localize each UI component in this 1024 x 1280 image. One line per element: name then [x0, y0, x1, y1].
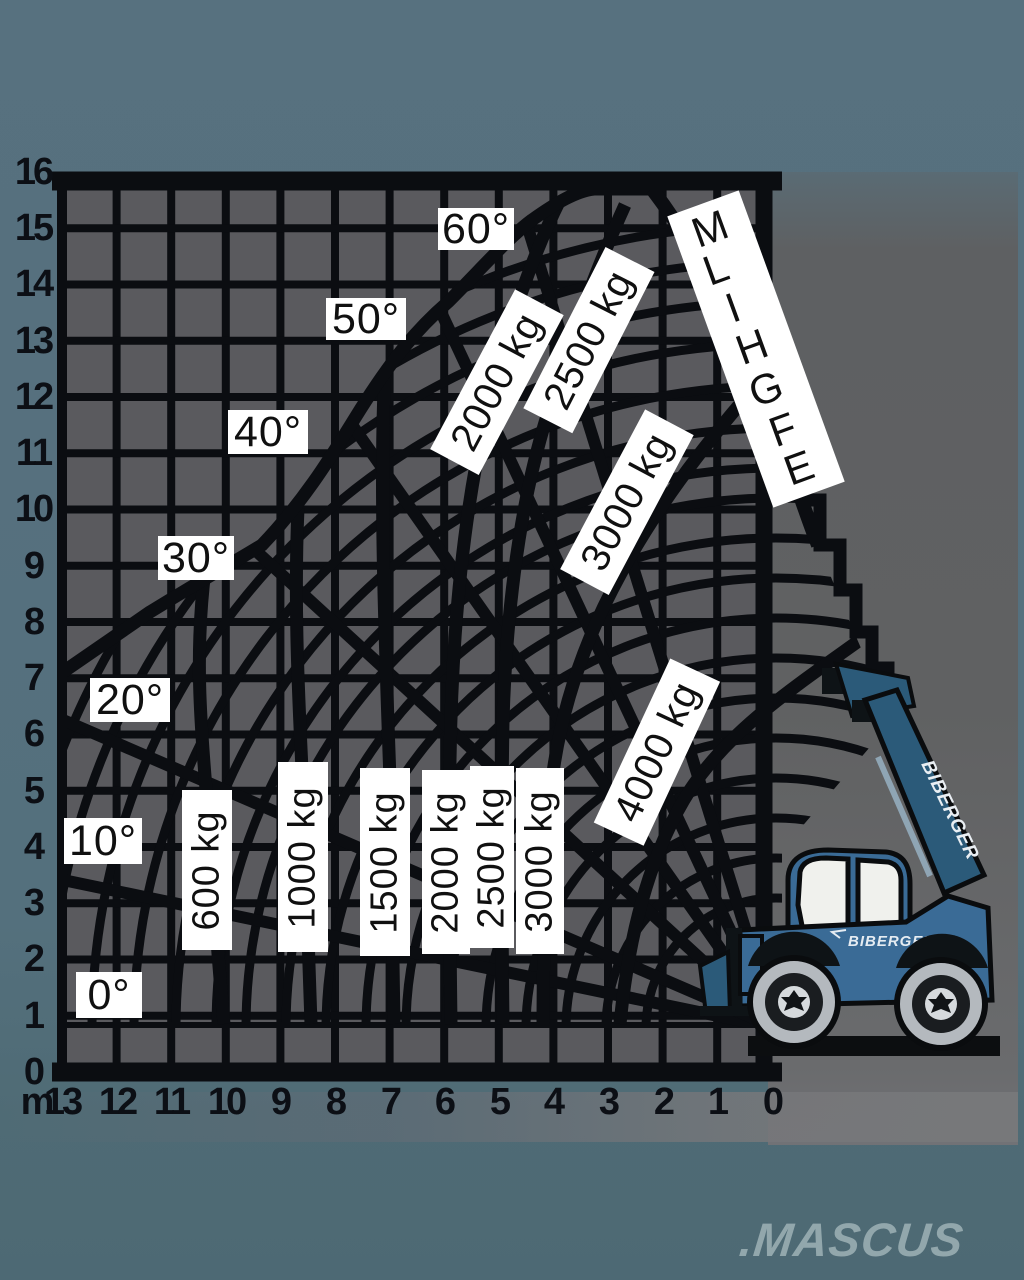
capacity-label-2000: 2000 kg — [422, 770, 470, 954]
screenshot-root: BIBERGER BIBERGER — [0, 0, 1024, 1280]
angle-label-10: 10° — [64, 818, 142, 864]
x-tick: 6 — [417, 1080, 471, 1124]
y-tick: 4 — [10, 825, 56, 869]
x-tick: 0 — [745, 1080, 799, 1124]
x-tick: 3 — [581, 1080, 635, 1124]
angle-label-50: 50° — [326, 298, 406, 340]
y-tick: 6 — [10, 712, 56, 756]
capacity-label-3000: 3000 kg — [516, 768, 564, 954]
angle-label-60: 60° — [438, 208, 514, 250]
y-tick: 12 — [10, 375, 56, 419]
y-tick: 3 — [10, 881, 56, 925]
rear-wheel — [896, 934, 988, 1048]
angle-label-0: 0° — [76, 972, 142, 1018]
y-tick: 13 — [10, 319, 56, 363]
front-wheel — [748, 932, 840, 1046]
capacity-label-2500: 2500 kg — [470, 766, 514, 948]
capacity-label-600: 600 kg — [182, 790, 232, 950]
x-tick: 11 — [144, 1080, 198, 1124]
y-tick: 11 — [10, 431, 56, 475]
capacity-label-1500: 1500 kg — [360, 768, 410, 956]
x-tick: 9 — [253, 1080, 307, 1124]
y-tick: 2 — [10, 937, 56, 981]
y-tick: 14 — [10, 262, 56, 306]
y-tick: 8 — [10, 600, 56, 644]
y-tick: 15 — [10, 206, 56, 250]
x-tick: 8 — [308, 1080, 362, 1124]
y-tick: 1 — [10, 994, 56, 1038]
capacity-label-1000: 1000 kg — [278, 762, 328, 952]
y-tick: 9 — [10, 544, 56, 588]
y-tick: 10 — [10, 487, 56, 531]
x-tick: 12 — [90, 1080, 144, 1124]
x-tick: 4 — [526, 1080, 580, 1124]
angle-label-20: 20° — [90, 678, 170, 722]
x-tick: 2 — [636, 1080, 690, 1124]
x-tick: 13 — [35, 1080, 89, 1124]
mascus-watermark: .MASCUS — [737, 1212, 1022, 1264]
x-tick: 7 — [363, 1080, 417, 1124]
x-tick: 10 — [199, 1080, 253, 1124]
x-tick: 5 — [472, 1080, 526, 1124]
angle-label-30: 30° — [158, 536, 234, 580]
y-tick: 16 — [10, 150, 56, 194]
y-tick: 7 — [10, 656, 56, 700]
y-tick: 5 — [10, 769, 56, 813]
angle-label-40: 40° — [228, 410, 308, 454]
x-tick: 1 — [690, 1080, 744, 1124]
